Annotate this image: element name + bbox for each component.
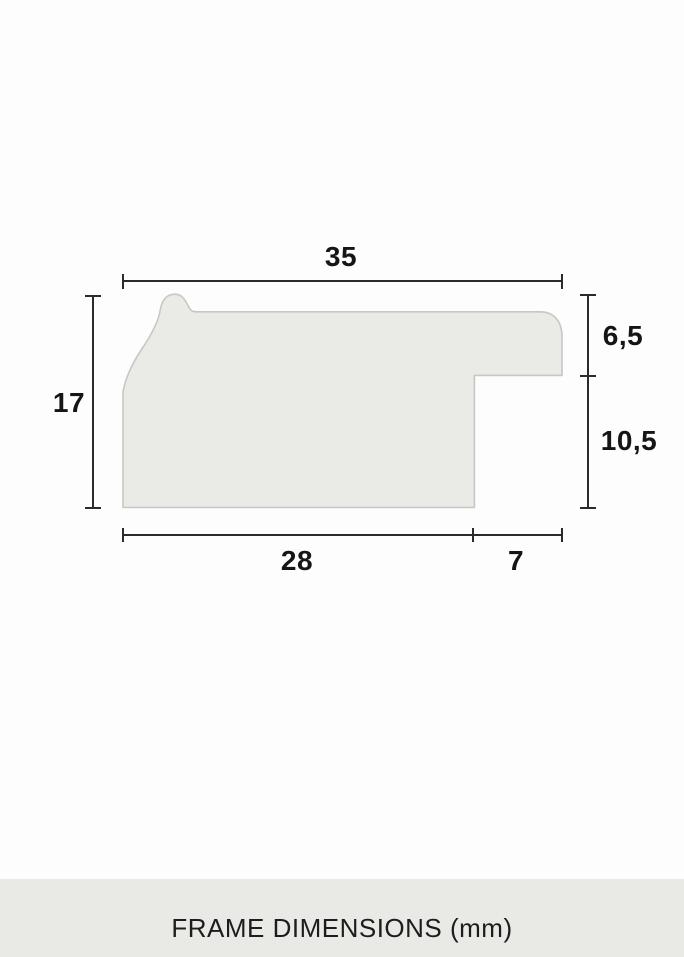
bottom-left-label: 28 [281, 547, 313, 575]
footer-title: FRAME DIMENSIONS (mm) [171, 915, 512, 941]
bottom-right-label: 7 [508, 547, 524, 575]
right-top-label: 6,5 [603, 322, 643, 350]
profile-drawing [0, 0, 684, 957]
frame-profile-shape [123, 294, 562, 507]
right-bottom-label: 10,5 [601, 427, 658, 455]
left-height-label: 17 [53, 389, 85, 417]
footer-bar: FRAME DIMENSIONS (mm) [0, 879, 684, 957]
frame-dimension-diagram: 35 17 6,5 10,5 28 7 FRAME DIMENSIONS (mm… [0, 0, 684, 957]
top-width-label: 35 [325, 243, 357, 271]
